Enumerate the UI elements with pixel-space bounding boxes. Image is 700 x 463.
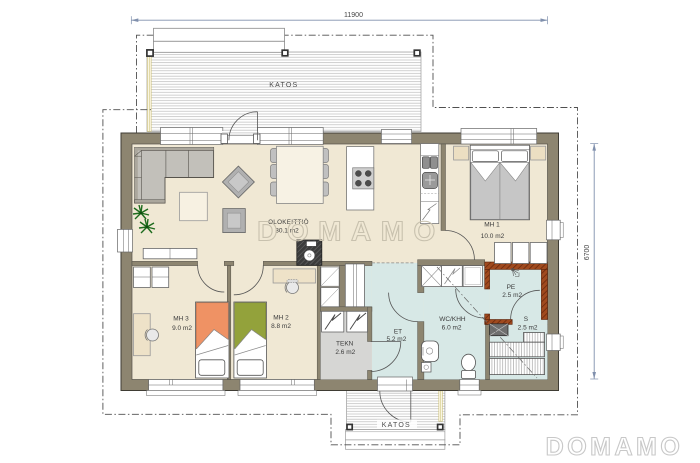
svg-text:ET: ET [394, 328, 402, 335]
svg-text:6700: 6700 [584, 245, 591, 261]
svg-text:KATOS: KATOS [269, 82, 298, 89]
svg-text:10.0 m2: 10.0 m2 [481, 233, 505, 240]
svg-text:8.8 m2: 8.8 m2 [271, 323, 291, 330]
svg-text:2.5 m2: 2.5 m2 [502, 292, 522, 299]
svg-text:WC/KHH: WC/KHH [439, 316, 466, 323]
svg-text:TEKN: TEKN [336, 340, 354, 347]
svg-text:2.6 m2: 2.6 m2 [335, 349, 355, 356]
svg-text:DOMAMO: DOMAMO [546, 433, 684, 461]
svg-text:MH 1: MH 1 [484, 221, 500, 228]
svg-text:KATOS: KATOS [382, 422, 411, 429]
svg-text:DOMAMO: DOMAMO [257, 216, 445, 247]
svg-text:9.0 m2: 9.0 m2 [172, 325, 192, 332]
svg-text:5.2 m2: 5.2 m2 [386, 336, 406, 343]
svg-text:S: S [524, 316, 529, 323]
svg-text:PE: PE [507, 284, 516, 291]
svg-text:6.0 m2: 6.0 m2 [442, 324, 462, 331]
svg-text:11900: 11900 [344, 12, 363, 19]
svg-text:2.5 m2: 2.5 m2 [518, 324, 538, 331]
svg-text:MH 2: MH 2 [273, 314, 289, 321]
svg-text:MH 3: MH 3 [173, 315, 189, 322]
